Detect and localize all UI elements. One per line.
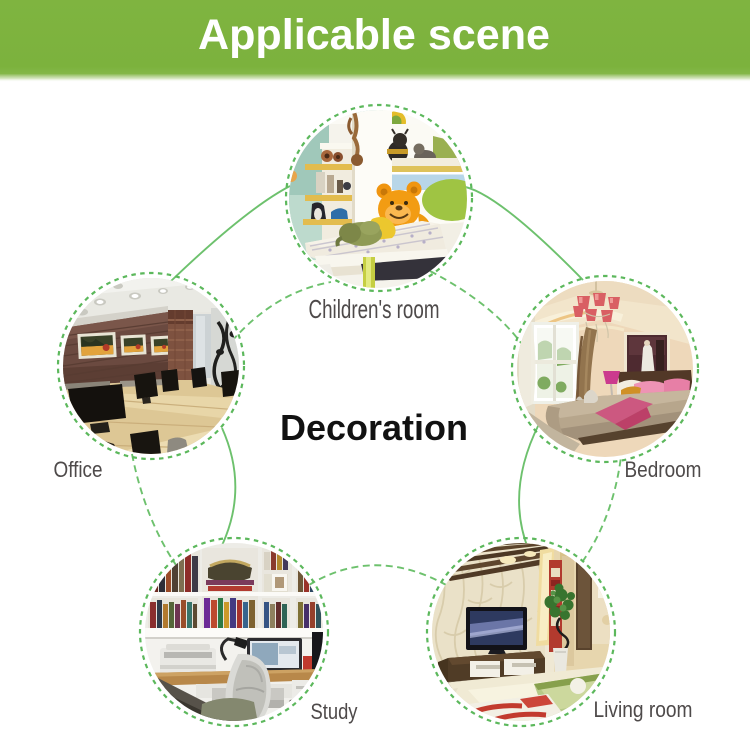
svg-text:Applicable scene: Applicable scene [198, 11, 550, 59]
svg-text:Study: Study [311, 699, 358, 724]
svg-text:Living room: Living room [594, 697, 693, 722]
svg-text:Office: Office [54, 457, 103, 482]
svg-text:Children's room: Children's room [309, 294, 440, 324]
svg-text:Bedroom: Bedroom [625, 457, 702, 482]
svg-text:Decoration: Decoration [280, 407, 468, 448]
